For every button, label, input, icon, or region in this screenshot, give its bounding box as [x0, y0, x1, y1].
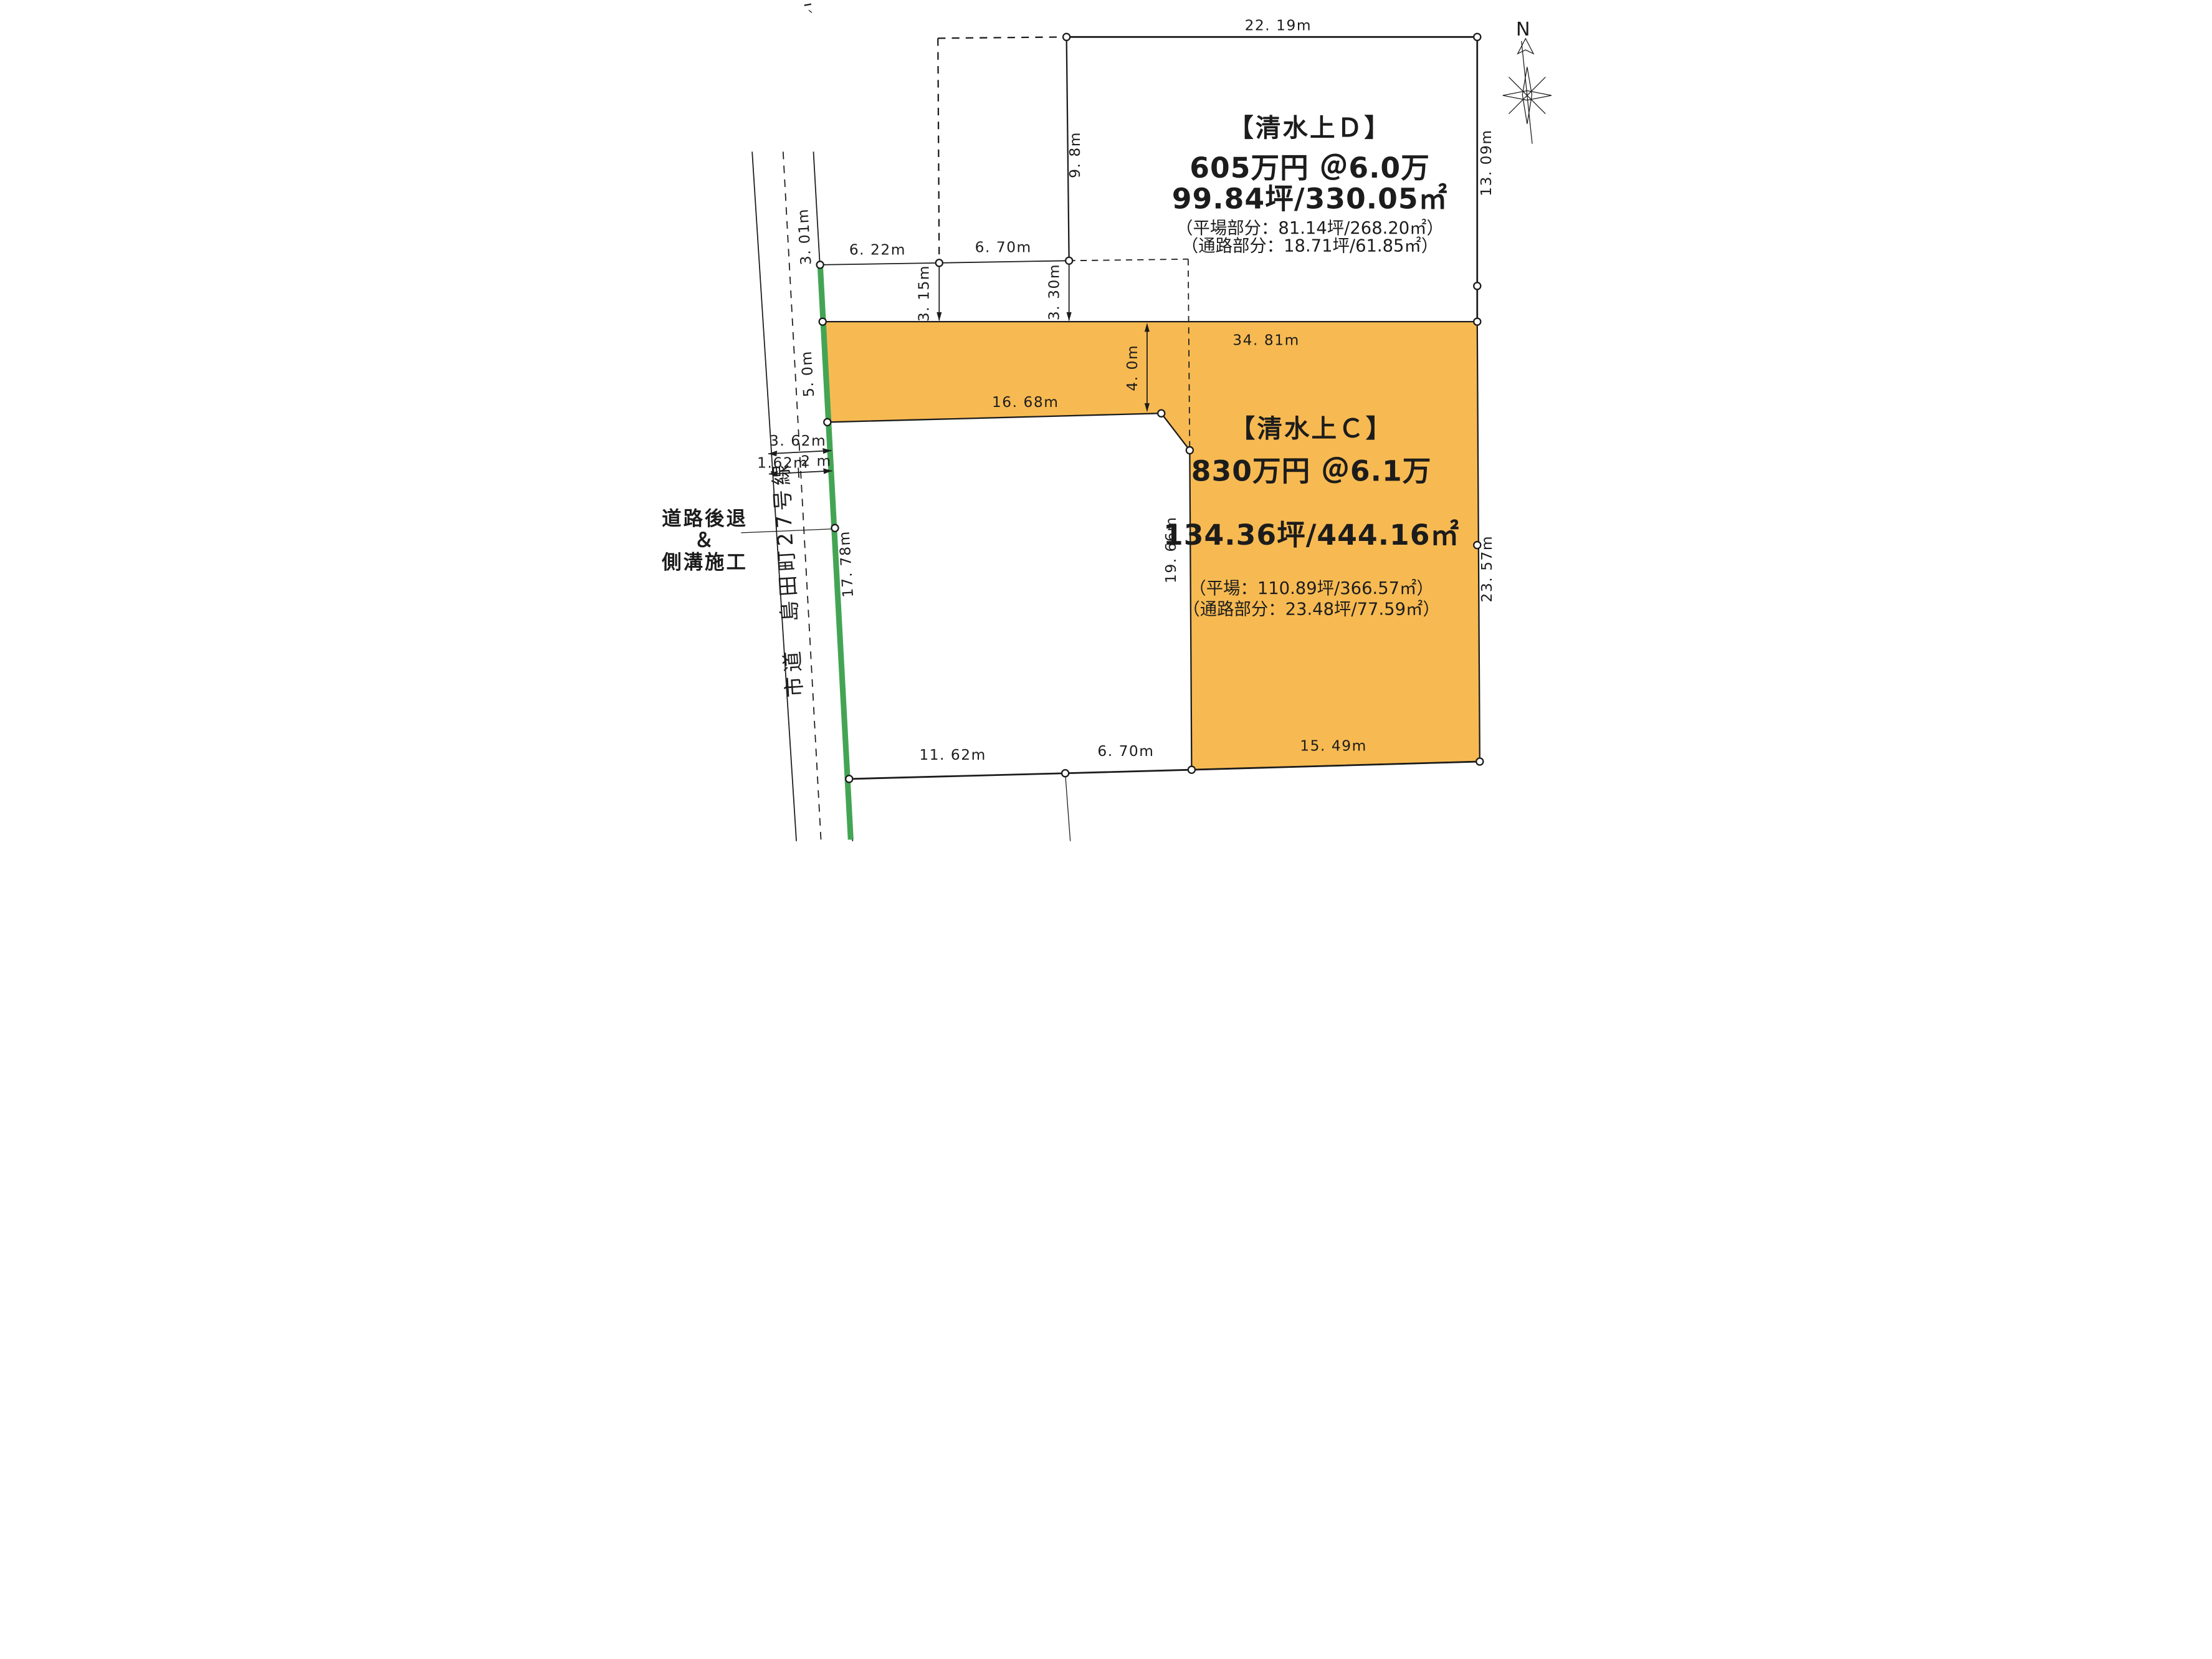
setback-note-line1: 道路後退 — [662, 508, 748, 530]
survey-point — [936, 259, 943, 266]
dim-label-5-0m: 5. 0m — [798, 350, 818, 398]
survey-point — [819, 318, 826, 325]
dim-label-3-62m: 3. 62m — [770, 433, 826, 449]
survey-point — [1474, 318, 1480, 325]
dim-label-34-81m: 34. 81m — [1232, 332, 1300, 349]
dim-label-6-70m-bottom: 6. 70m — [1097, 743, 1154, 760]
dim-label-11-62m: 11. 62m — [919, 747, 986, 763]
dim-label-2m: 2 m — [801, 452, 832, 469]
bottom-boundary-line — [849, 762, 1480, 779]
survey-point — [1065, 257, 1072, 264]
compass-needle-icon — [1518, 39, 1533, 54]
survey-point — [1063, 34, 1070, 41]
parcel-c-title: 【清水上Ｃ】 — [1230, 414, 1393, 444]
survey-point — [1188, 767, 1195, 773]
parcel-d-passage-area: （通路部分：18.71坪/61.85㎡） — [1181, 237, 1438, 256]
compass-rose: N — [1503, 19, 1552, 144]
survey-point — [1476, 758, 1483, 765]
dim-label-3-30m: 3. 30m — [1046, 264, 1062, 320]
compass-north-label: N — [1516, 19, 1530, 41]
arrowhead — [1067, 312, 1072, 321]
survey-point — [824, 419, 831, 426]
survey-point — [1158, 410, 1165, 417]
frontage-dimension-line — [820, 261, 1069, 265]
dim-label-22-19m: 22. 19m — [1245, 17, 1312, 34]
parcel-d-info: 【清水上Ｄ】 605万円 ＠6.0万 99.84坪/330.05㎡ （平場部分：… — [1172, 113, 1448, 256]
dim-label-3-01m: 3. 01m — [794, 208, 815, 265]
survey-point — [1062, 770, 1069, 777]
survey-point — [817, 261, 824, 268]
dim-label-13-09m: 13. 09m — [1478, 129, 1495, 196]
parcel-d-flat-area: （平場部分：81.14坪/268.20㎡） — [1176, 219, 1444, 238]
setback-note-line2: ＆ — [694, 529, 715, 552]
parcel-d-price: 605万円 ＠6.0万 — [1189, 151, 1430, 184]
survey-point — [831, 525, 838, 532]
dim-label-16-68m: 16. 68m — [992, 394, 1059, 411]
site-plan-svg: N 22. 19m 6. 22m 6. 70m 34. 81m 16. 68m … — [545, 0, 1667, 841]
parcel-d-area: 99.84坪/330.05㎡ — [1172, 183, 1448, 216]
dim-label-6-22m: 6. 22m — [849, 242, 906, 259]
dim-label-15-49m: 15. 49m — [1300, 738, 1367, 755]
stray-mark — [809, 10, 812, 12]
setback-note: 道路後退 ＆ 側溝施工 — [661, 508, 748, 574]
survey-point — [1186, 447, 1193, 454]
parcel-c-flat-area: （平場：110.89坪/366.57㎡） — [1189, 579, 1433, 598]
dim-label-9-8m: 9. 8m — [1067, 131, 1084, 178]
parcel-c-area: 134.36坪/444.16㎡ — [1163, 519, 1459, 552]
dim-label-6-70m-top: 6. 70m — [975, 239, 1032, 256]
dashed-boundary-west — [938, 38, 939, 263]
arrowhead — [937, 312, 942, 321]
parcel-c-price: 830万円 ＠6.1万 — [1191, 455, 1432, 488]
setback-note-line3: 側溝施工 — [661, 552, 748, 574]
bottom-extension-line — [1065, 773, 1070, 841]
dim-label-4-0m: 4. 0m — [1124, 345, 1141, 391]
dashed-passage-top — [1069, 259, 1188, 261]
dim-label-23-57m: 23. 57m — [1479, 535, 1495, 603]
stray-mark — [804, 4, 811, 6]
parcel-d-title: 【清水上Ｄ】 — [1228, 113, 1391, 143]
dim-label-3-15m: 3. 15m — [916, 265, 933, 322]
parcel-c-passage-area: （通路部分：23.48坪/77.59㎡） — [1183, 600, 1439, 619]
survey-point — [846, 775, 852, 782]
road-name-label: 市道 島田町27号線 — [768, 459, 807, 698]
site-plan-page: N 22. 19m 6. 22m 6. 70m 34. 81m 16. 68m … — [545, 0, 1667, 841]
survey-point — [1474, 34, 1480, 41]
dashed-boundary-top — [938, 37, 1066, 38]
survey-point — [1474, 282, 1480, 289]
